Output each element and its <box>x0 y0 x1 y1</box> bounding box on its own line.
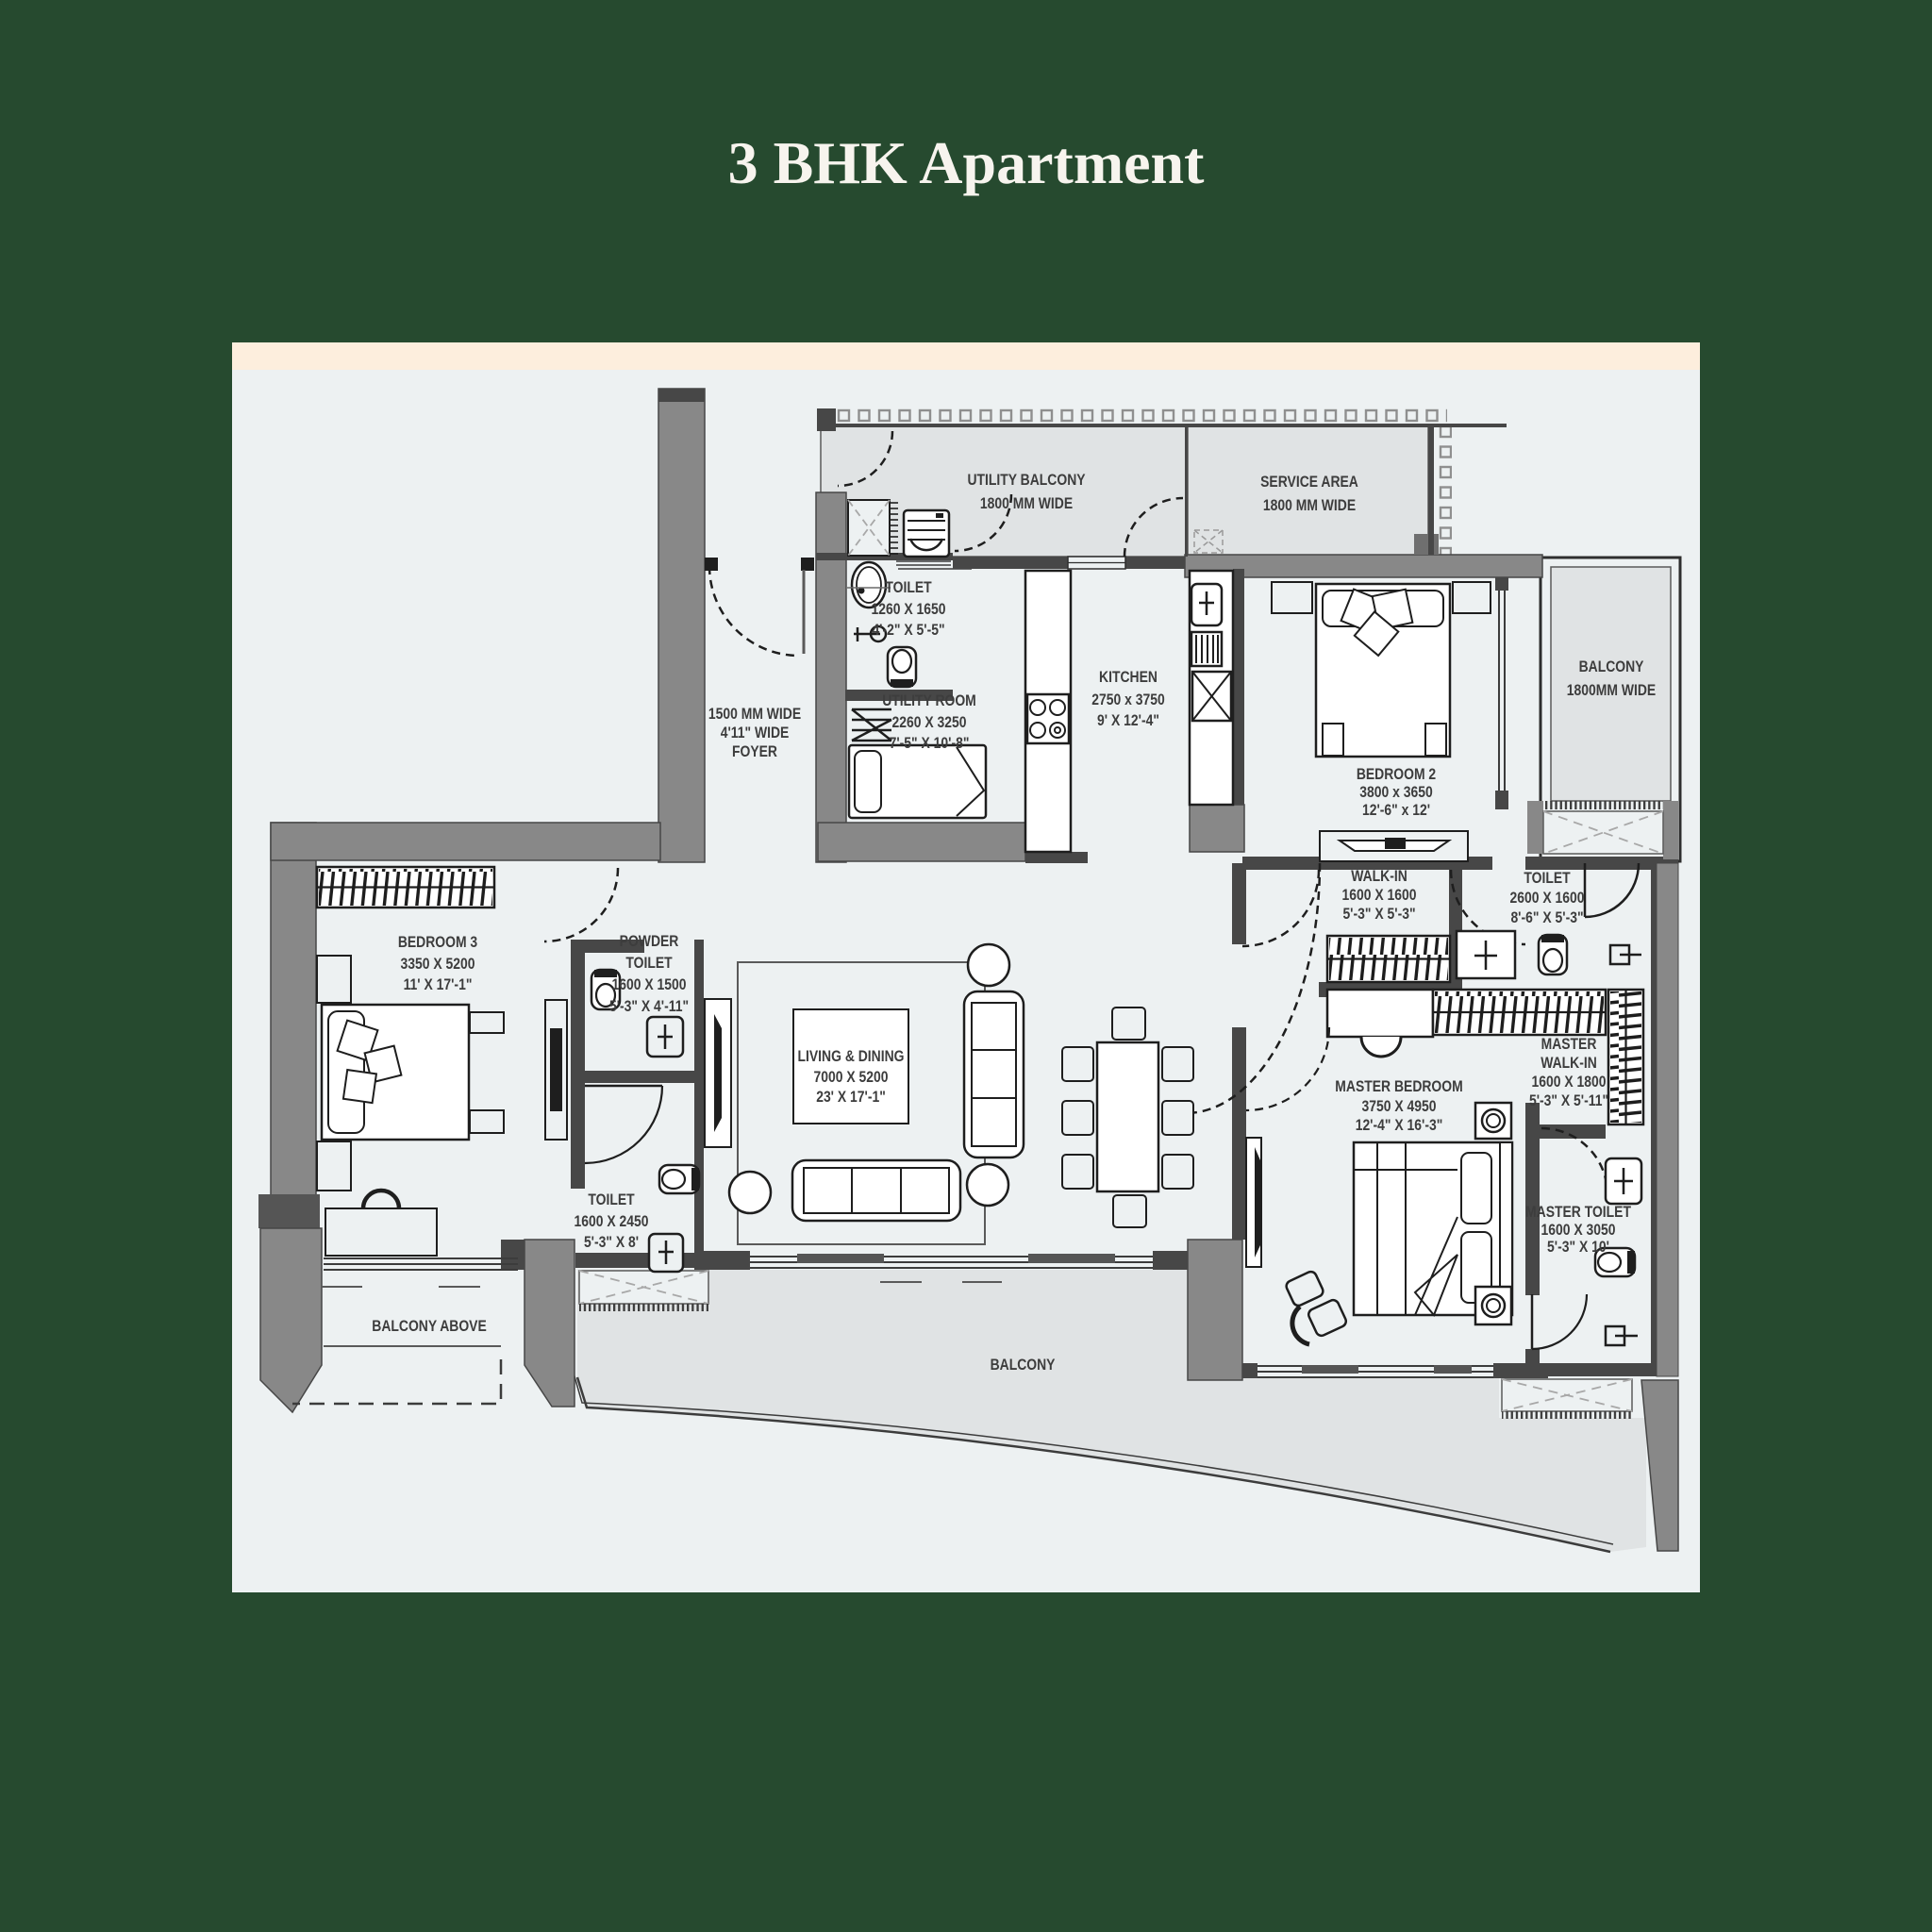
svg-text:1800 MM WIDE: 1800 MM WIDE <box>980 495 1073 513</box>
svg-text:UTILITY BALCONY: UTILITY BALCONY <box>967 472 1086 490</box>
svg-text:5'-3" X 8': 5'-3" X 8' <box>584 1234 639 1252</box>
svg-text:2600 X 1600: 2600 X 1600 <box>1510 890 1585 908</box>
svg-text:1800MM WIDE: 1800MM WIDE <box>1567 682 1656 700</box>
svg-text:1500 MM WIDE: 1500 MM WIDE <box>708 706 801 724</box>
svg-text:5'-3" X 5'-3": 5'-3" X 5'-3" <box>1342 906 1415 924</box>
svg-text:TOILET: TOILET <box>1524 870 1571 888</box>
svg-text:UTILITY ROOM: UTILITY ROOM <box>882 692 976 710</box>
svg-text:1600 X 2450: 1600 X 2450 <box>575 1213 649 1231</box>
svg-text:MASTER TOILET: MASTER TOILET <box>1525 1204 1631 1222</box>
svg-text:WALK-IN: WALK-IN <box>1351 868 1407 886</box>
svg-text:5'-3" X 10': 5'-3" X 10' <box>1547 1239 1609 1257</box>
svg-text:WALK-IN: WALK-IN <box>1541 1055 1597 1073</box>
svg-text:9' X 12'-4": 9' X 12'-4" <box>1097 712 1159 730</box>
svg-text:12'-6" x 12': 12'-6" x 12' <box>1362 802 1430 820</box>
svg-text:1600 X 3050: 1600 X 3050 <box>1541 1222 1616 1240</box>
svg-text:SERVICE AREA: SERVICE AREA <box>1260 474 1358 491</box>
svg-text:4'11" WIDE: 4'11" WIDE <box>721 724 790 742</box>
svg-text:2260 X 3250: 2260 X 3250 <box>892 714 967 732</box>
svg-text:BALCONY ABOVE: BALCONY ABOVE <box>372 1318 486 1336</box>
svg-text:23' X 17'-1": 23' X 17'-1" <box>816 1089 886 1107</box>
svg-text:1600 X 1500: 1600 X 1500 <box>612 976 687 994</box>
svg-text:7'-5" X 10'-8": 7'-5" X 10'-8" <box>890 735 970 753</box>
svg-text:3 BHK Apartment: 3 BHK Apartment <box>728 129 1206 196</box>
svg-text:11' X 17'-1": 11' X 17'-1" <box>404 976 473 994</box>
svg-text:KITCHEN: KITCHEN <box>1099 669 1158 687</box>
svg-text:5'-3" X 4'-11": 5'-3" X 4'-11" <box>609 998 689 1016</box>
svg-text:3750 X 4950: 3750 X 4950 <box>1362 1098 1437 1116</box>
svg-text:2750 x 3750: 2750 x 3750 <box>1091 691 1164 709</box>
svg-text:POWDER: POWDER <box>620 933 679 951</box>
svg-text:3350 X 5200: 3350 X 5200 <box>401 956 475 974</box>
svg-text:5'-3" X 5'-11": 5'-3" X 5'-11" <box>1529 1092 1608 1110</box>
svg-text:1600 X 1600: 1600 X 1600 <box>1342 887 1417 905</box>
svg-text:8'-6" X 5'-3": 8'-6" X 5'-3" <box>1510 909 1583 927</box>
svg-text:MASTER BEDROOM: MASTER BEDROOM <box>1335 1078 1462 1096</box>
svg-text:TOILET: TOILET <box>588 1191 635 1209</box>
svg-text:3800 x 3650: 3800 x 3650 <box>1359 784 1432 802</box>
svg-text:1600 X 1800: 1600 X 1800 <box>1532 1074 1607 1091</box>
svg-text:BALCONY: BALCONY <box>991 1357 1056 1374</box>
svg-text:7000 X 5200: 7000 X 5200 <box>814 1069 889 1087</box>
svg-text:1800 MM WIDE: 1800 MM WIDE <box>1263 497 1356 515</box>
svg-text:BALCONY: BALCONY <box>1579 658 1644 676</box>
svg-text:LIVING & DINING: LIVING & DINING <box>798 1048 905 1066</box>
svg-text:TOILET: TOILET <box>625 955 673 973</box>
svg-text:BEDROOM 2: BEDROOM 2 <box>1357 766 1437 784</box>
svg-text:1260 X 1650: 1260 X 1650 <box>872 601 946 619</box>
svg-text:4'-2" X 5'-5": 4'-2" X 5'-5" <box>872 622 944 640</box>
svg-text:TOILET: TOILET <box>885 579 932 597</box>
svg-text:MASTER: MASTER <box>1541 1036 1597 1054</box>
svg-text:12'-4" X 16'-3": 12'-4" X 16'-3" <box>1356 1117 1443 1135</box>
svg-text:BEDROOM 3: BEDROOM 3 <box>398 934 478 952</box>
svg-text:FOYER: FOYER <box>732 743 777 761</box>
